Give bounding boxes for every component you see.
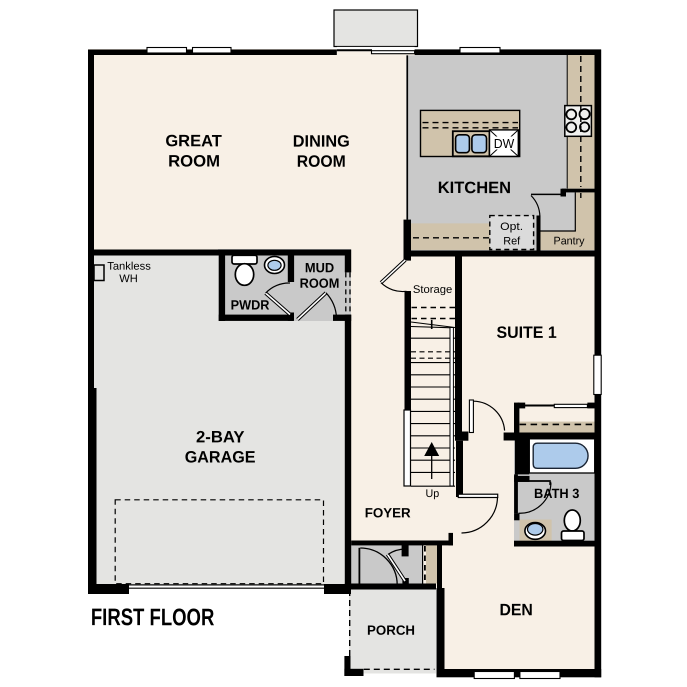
- svg-text:Storage: Storage: [413, 284, 452, 296]
- svg-text:Tankless: Tankless: [107, 261, 151, 273]
- svg-text:GARAGE: GARAGE: [185, 449, 256, 467]
- svg-text:KITCHEN: KITCHEN: [438, 179, 511, 197]
- svg-text:PWDR: PWDR: [231, 297, 270, 312]
- svg-text:ROOM: ROOM: [300, 276, 340, 291]
- svg-text:DEN: DEN: [499, 601, 532, 619]
- svg-text:Up: Up: [425, 488, 439, 500]
- svg-text:PORCH: PORCH: [367, 623, 415, 638]
- svg-text:2-BAY: 2-BAY: [196, 428, 245, 446]
- svg-text:Opt.: Opt.: [500, 221, 523, 233]
- svg-text:GREAT: GREAT: [165, 132, 222, 150]
- svg-text:DINING: DINING: [293, 133, 350, 151]
- svg-text:WH: WH: [119, 273, 138, 285]
- svg-text:Pantry: Pantry: [554, 235, 585, 247]
- svg-text:SUITE 1: SUITE 1: [496, 324, 556, 342]
- svg-text:ROOM: ROOM: [297, 153, 346, 171]
- svg-text:FIRST FLOOR: FIRST FLOOR: [91, 604, 215, 631]
- svg-text:ROOM: ROOM: [168, 153, 220, 171]
- svg-text:MUD: MUD: [305, 260, 335, 275]
- svg-text:Ref: Ref: [503, 236, 521, 248]
- svg-text:BATH 3: BATH 3: [534, 486, 580, 501]
- svg-text:DW: DW: [494, 136, 515, 151]
- svg-text:FOYER: FOYER: [365, 505, 411, 520]
